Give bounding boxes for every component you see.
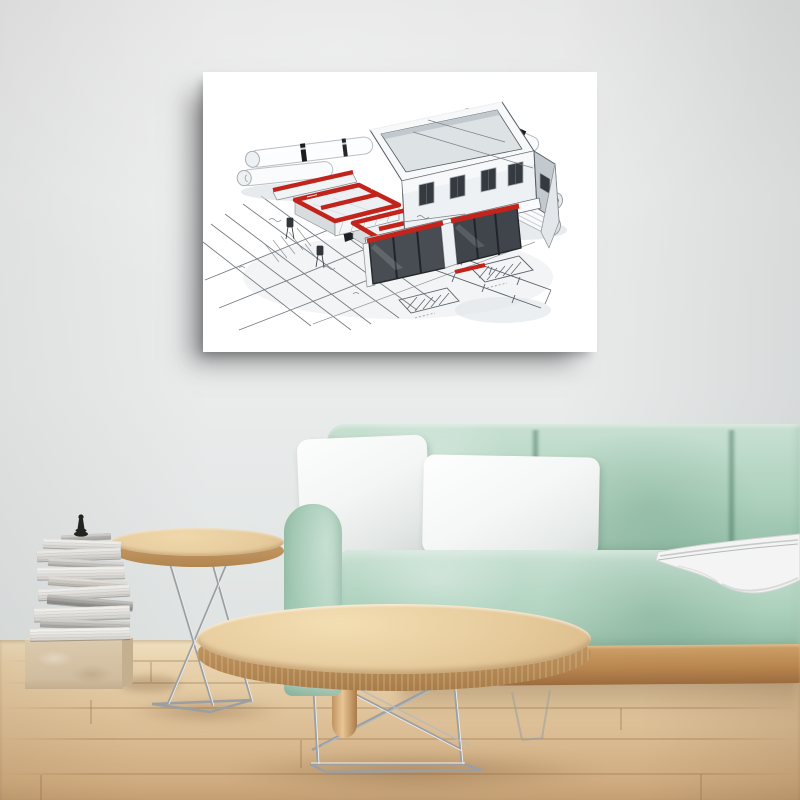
book-stack bbox=[30, 532, 134, 640]
chess-piece bbox=[70, 513, 92, 539]
lumbar-pillow bbox=[422, 454, 600, 556]
side-table-top bbox=[112, 528, 284, 556]
throw-blanket bbox=[648, 518, 800, 610]
coffee-table-top bbox=[197, 604, 591, 674]
stone-block-front bbox=[25, 640, 123, 689]
book bbox=[30, 627, 130, 641]
living-room-scene: Product photo of a rectangular white can… bbox=[0, 0, 800, 800]
stone-block-side bbox=[122, 638, 133, 688]
